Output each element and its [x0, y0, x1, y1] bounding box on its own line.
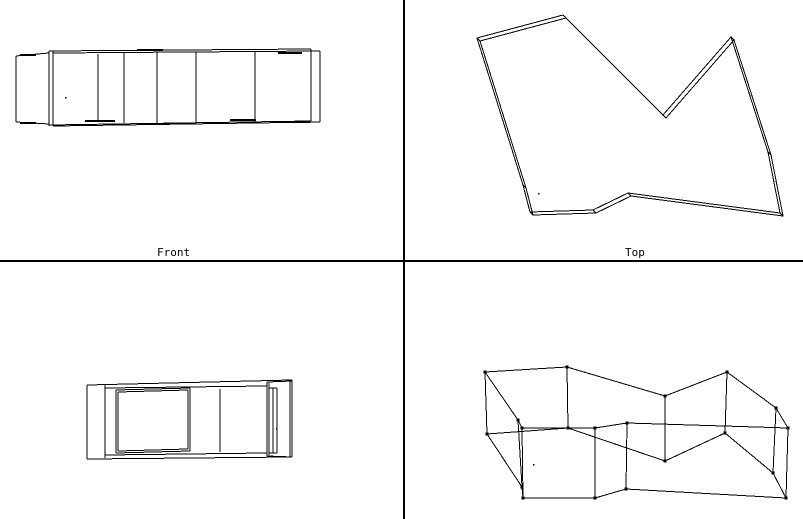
selected-vertex[interactable] — [626, 422, 629, 425]
selected-vertex[interactable] — [566, 366, 569, 369]
selected-vertex[interactable] — [726, 371, 729, 374]
perspective-viewport-drawing[interactable] — [484, 366, 790, 500]
perspective-bottom-ring — [487, 428, 786, 498]
side-edge — [105, 453, 267, 455]
perspective-vertical-edge — [626, 423, 627, 489]
viewport-front-label: Front — [157, 247, 190, 258]
selected-vertex[interactable] — [486, 433, 489, 436]
selected-vertex[interactable] — [522, 497, 525, 500]
side-viewport-drawing[interactable] — [87, 380, 292, 459]
perspective-vertical-edge — [518, 420, 522, 487]
front-viewport-drawing[interactable] — [16, 49, 320, 126]
selected-vertex[interactable] — [775, 407, 778, 410]
side-edge — [116, 388, 190, 390]
viewport-top-label: Top — [625, 247, 645, 258]
perspective-vertical-edge — [773, 408, 776, 473]
top-outline-far — [480, 18, 783, 216]
perspective-vertical-edge — [485, 372, 487, 434]
perspective-vertical-edge — [786, 428, 788, 498]
side-edge — [87, 457, 292, 459]
selected-vertex[interactable] — [521, 427, 524, 430]
selected-vertex[interactable] — [594, 497, 597, 500]
viewport-dividers — [0, 0, 803, 519]
perspective-origin-dot — [533, 464, 535, 466]
side-edge — [118, 390, 188, 392]
side-origin-dot — [276, 428, 278, 430]
side-edge — [118, 449, 188, 451]
selected-vertex[interactable] — [521, 486, 524, 489]
top-corner-edge — [563, 15, 566, 18]
selected-vertex[interactable] — [567, 427, 570, 430]
front-edge — [49, 49, 311, 51]
top-origin-dot — [538, 193, 540, 195]
wireframe-canvas — [0, 0, 803, 519]
selected-vertex[interactable] — [785, 497, 788, 500]
selected-vertex[interactable] — [787, 427, 790, 430]
selected-vertex[interactable] — [664, 460, 667, 463]
side-edge — [87, 380, 292, 385]
perspective-vertical-edge — [725, 372, 727, 433]
selected-vertex[interactable] — [517, 419, 520, 422]
front-origin-dot — [65, 97, 67, 99]
side-edge — [116, 451, 190, 453]
top-viewport-drawing[interactable] — [477, 15, 783, 216]
selected-vertex[interactable] — [625, 488, 628, 491]
selected-vertex[interactable] — [594, 427, 597, 430]
selected-vertex[interactable] — [724, 432, 727, 435]
selected-vertex[interactable] — [484, 371, 487, 374]
selected-vertex[interactable] — [664, 395, 667, 398]
quad-view-workspace: Front Top — [0, 0, 803, 519]
perspective-top-ring — [485, 367, 788, 428]
perspective-vertical-edge — [567, 367, 568, 428]
selected-vertex[interactable] — [772, 472, 775, 475]
side-edge — [267, 381, 292, 382]
top-corner-edge — [663, 115, 666, 118]
top-outline-near — [477, 15, 780, 213]
